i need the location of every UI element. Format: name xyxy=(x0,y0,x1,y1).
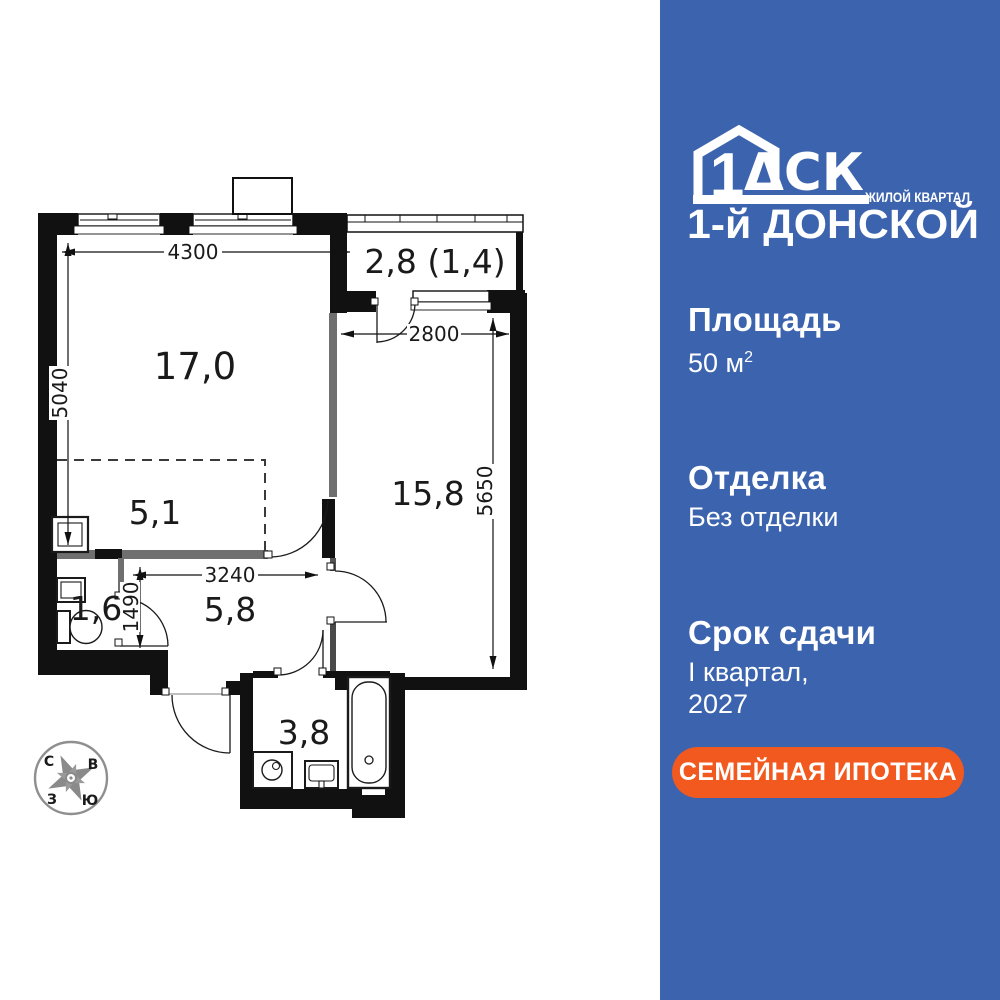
dim-hall-width: 3240 xyxy=(205,563,256,587)
logo-project-name: 1-й ДОНСКОЙ xyxy=(687,201,979,247)
logo-letters: ΔСК xyxy=(744,143,864,203)
info-sidebar: 1 ΔСК ЖИЛОЙ КВАРТАЛ 1-й ДОНСКОЙ Площадь … xyxy=(660,0,1000,1000)
washing-machine xyxy=(253,752,292,788)
bathroom-sink xyxy=(305,761,338,788)
logo-number: 1 xyxy=(710,141,744,210)
deadline-value-line2: 2027 xyxy=(688,688,748,720)
exterior-shaft-box xyxy=(233,178,292,214)
room-labels: 17,0 5,1 2,8 (1,4) 15,8 5,8 1,6 3,8 xyxy=(70,242,506,752)
compass-west: З xyxy=(47,792,57,808)
area-value-sup: 2 xyxy=(744,349,753,366)
dim-bedroom-height: 5650 xyxy=(473,466,497,517)
compass-east: В xyxy=(88,757,99,773)
bathtub xyxy=(348,677,390,788)
area-value: 50 м2 xyxy=(688,342,753,379)
room-label-bath: 3,8 xyxy=(278,713,330,752)
room-label-living: 17,0 xyxy=(154,345,236,388)
area-value-number: 50 м xyxy=(688,348,744,378)
room-label-kitchen-zone: 5,1 xyxy=(129,493,181,532)
floor-plan: 4300 5040 2800 5650 3240 1490 17,0 5,1 2… xyxy=(0,0,660,1000)
dim-top-width: 4300 xyxy=(168,240,219,264)
dim-hall-height: 1490 xyxy=(119,582,143,633)
room-label-hall: 5,8 xyxy=(204,590,256,629)
dim-left-height: 5040 xyxy=(48,368,72,419)
compass-north: С xyxy=(44,754,54,770)
compass-south: Ю xyxy=(82,793,98,809)
balcony-railing xyxy=(347,215,523,232)
family-mortgage-button[interactable]: СЕМЕЙНАЯ ИПОТЕКА xyxy=(672,747,964,798)
room-label-bedroom: 15,8 xyxy=(391,474,464,513)
dim-bedroom-width: 2800 xyxy=(409,322,460,346)
developer-logo: 1 ΔСК ЖИЛОЙ КВАРТАЛ 1-й ДОНСКОЙ xyxy=(687,125,987,250)
area-label: Площадь xyxy=(688,301,842,339)
deadline-value-line1: I квартал, xyxy=(688,656,809,688)
finish-label: Отделка xyxy=(688,459,826,497)
room-label-balcony: 2,8 (1,4) xyxy=(364,242,505,281)
compass-rose-icon: С В З Ю xyxy=(35,742,107,814)
deadline-label: Срок сдачи xyxy=(688,614,876,652)
finish-value: Без отделки xyxy=(688,501,838,533)
apartment-card: 4300 5040 2800 5650 3240 1490 17,0 5,1 2… xyxy=(0,0,1000,1000)
room-label-wc: 1,6 xyxy=(70,589,122,628)
kitchen-sink xyxy=(52,517,88,552)
